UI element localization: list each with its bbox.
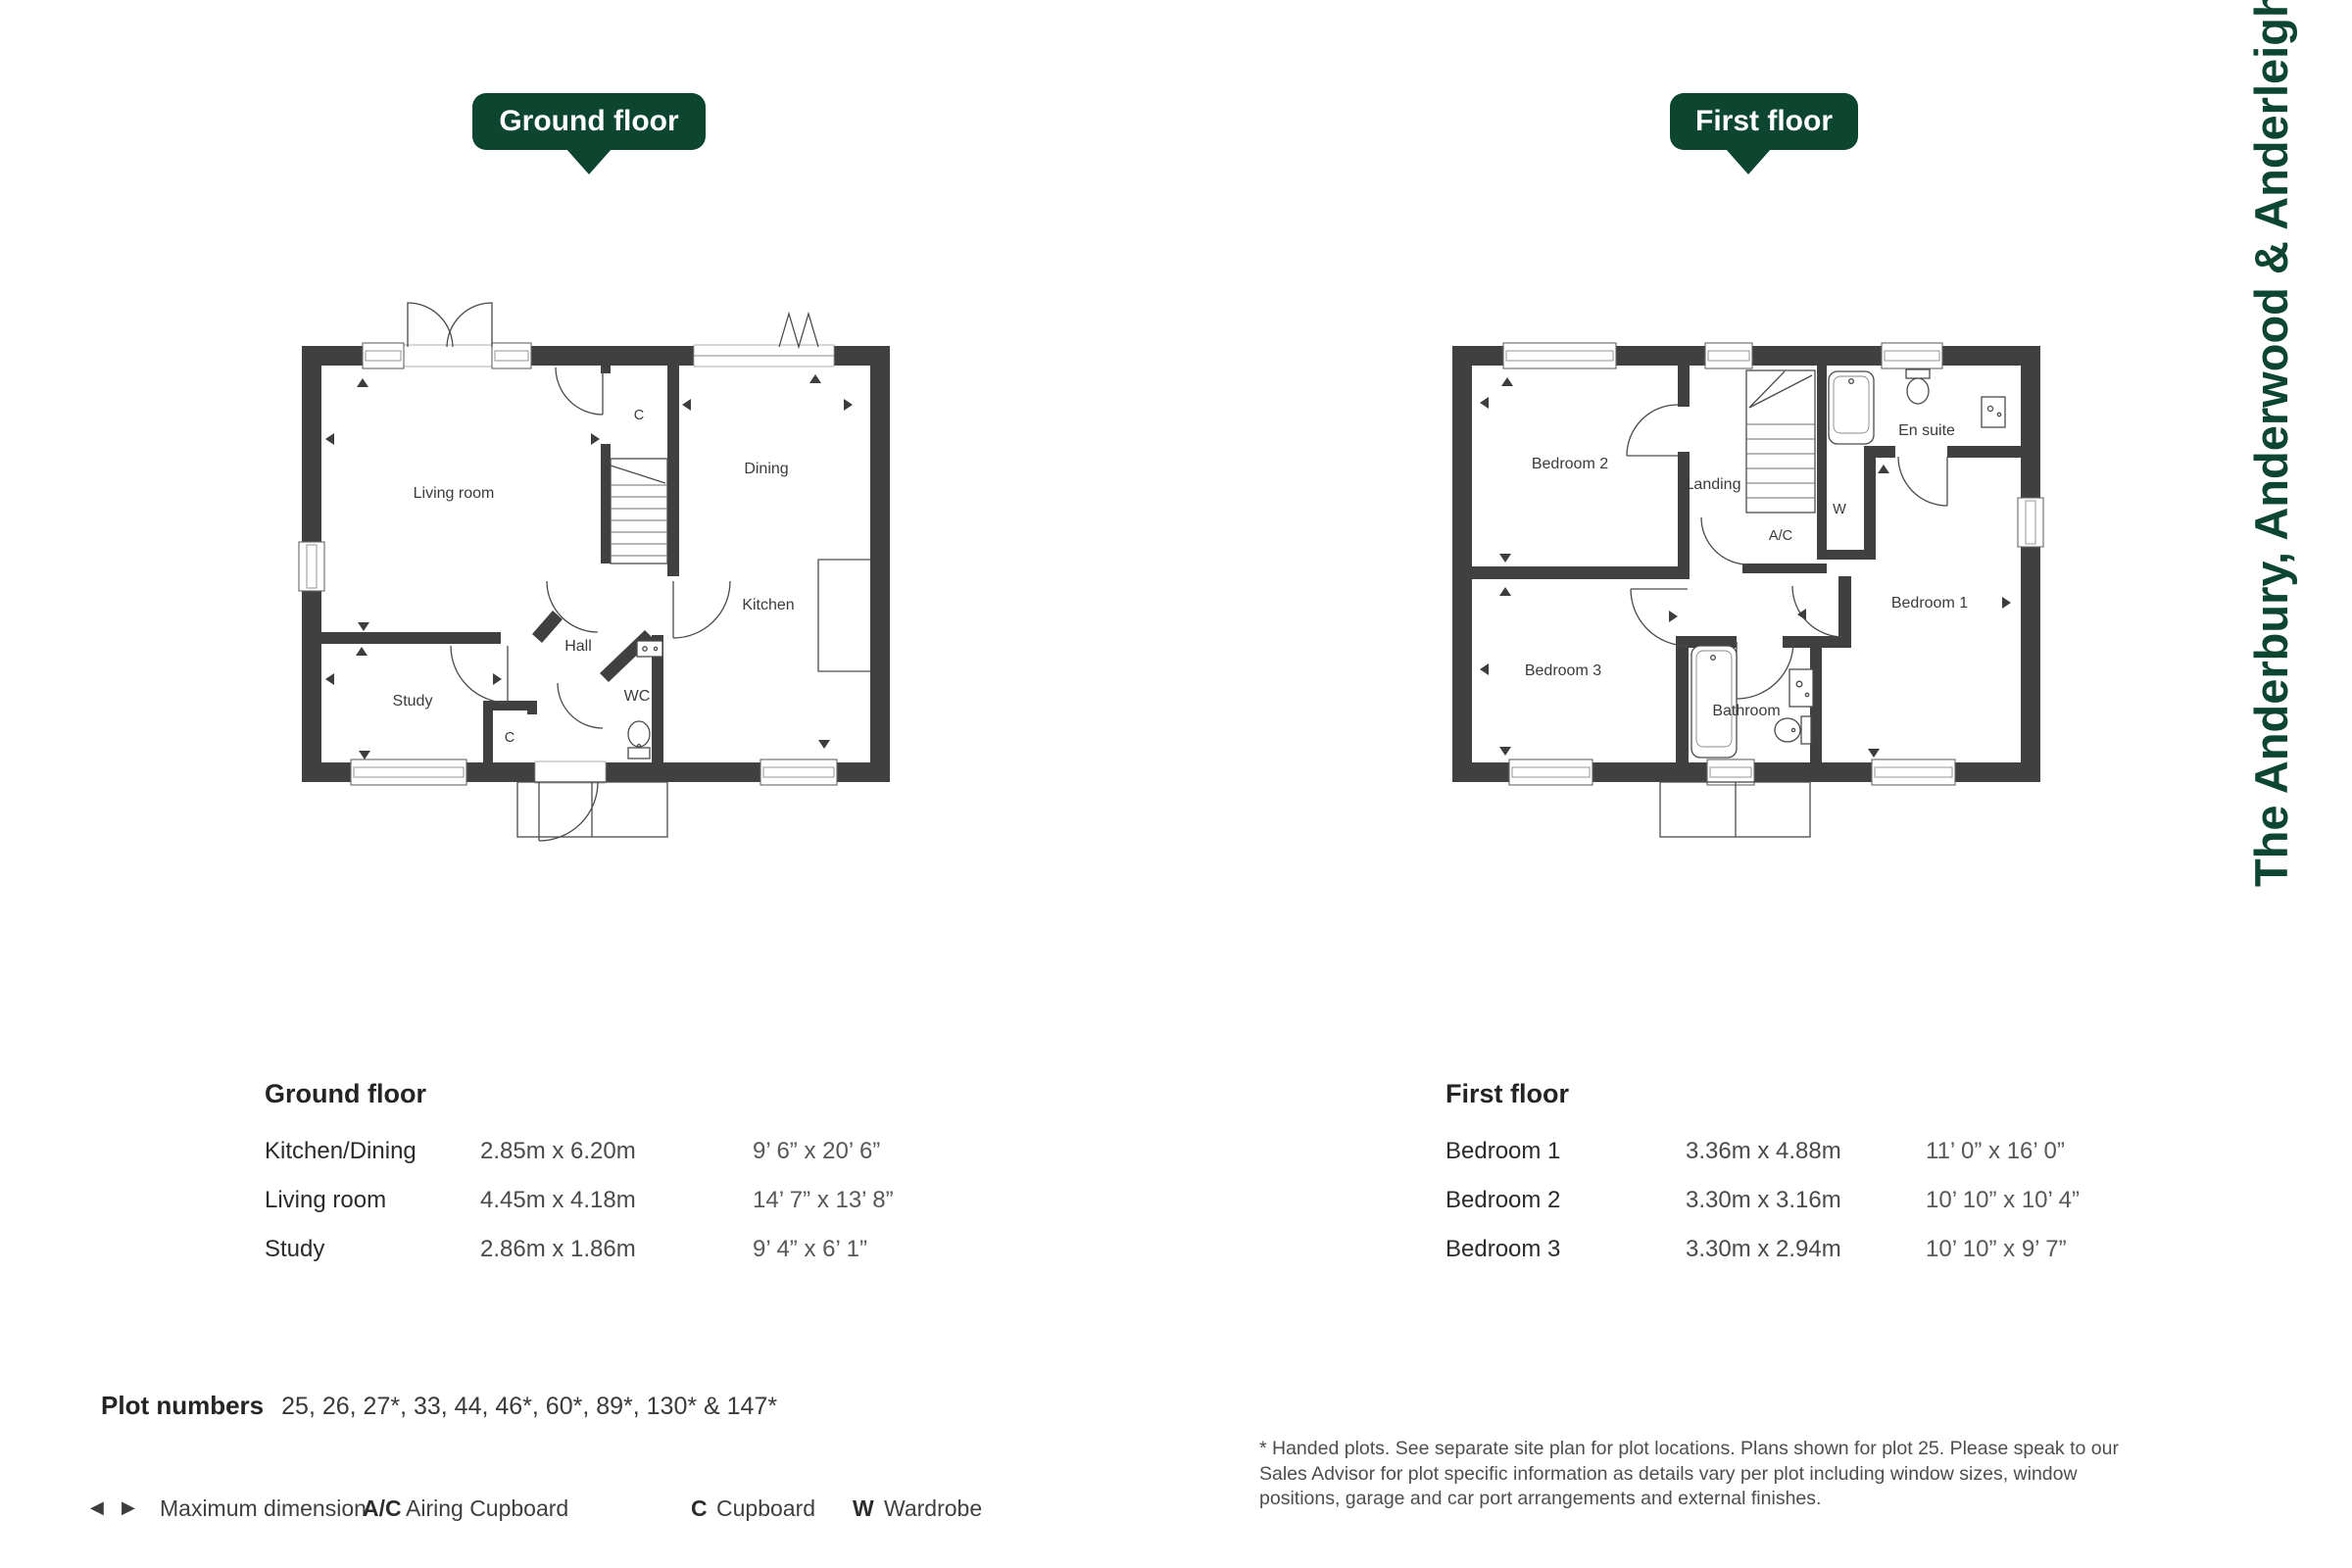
room-name: Bedroom 2 [1445, 1187, 1686, 1214]
first-floor-plan: Bedroom 2 Landing En suite W A/C Bedroom… [1452, 346, 2040, 848]
metric-dimension: 3.36m x 4.88m [1686, 1138, 1926, 1165]
room-name: Bedroom 1 [1445, 1138, 1686, 1165]
imperial-dimension: 10’ 10” x 10’ 4” [1926, 1187, 2151, 1214]
legend-cupboard-label: Cupboard [716, 1495, 815, 1522]
metric-dimension: 2.86m x 1.86m [480, 1236, 753, 1263]
ground-floor-plan: Living room Dining Kitchen Hall Study WC… [302, 346, 890, 848]
table-row: Bedroom 3 3.30m x 2.94m 10’ 10” x 9’ 7” [1445, 1225, 2151, 1274]
legend-airing-label: Airing Cupboard [406, 1495, 568, 1522]
room-name: Bedroom 3 [1445, 1236, 1686, 1263]
label-cupboard-b: C [505, 730, 514, 746]
first-floor-table: First floor Bedroom 1 3.36m x 4.88m 11’ … [1445, 1076, 2151, 1274]
first-doors [1627, 405, 1947, 699]
legend-wardrobe-label: Wardrobe [884, 1495, 982, 1522]
metric-dimension: 3.30m x 3.16m [1686, 1187, 1926, 1214]
metric-dimension: 4.45m x 4.18m [480, 1187, 753, 1214]
legend-airing-abbr: A/C [363, 1495, 402, 1522]
label-study: Study [393, 693, 433, 710]
legend-wardrobe-abbr: W [853, 1495, 874, 1522]
ground-doors [408, 303, 818, 841]
ground-floor-table-header: Ground floor [265, 1076, 978, 1127]
imperial-dimension: 10’ 10” x 9’ 7” [1926, 1236, 2151, 1263]
ground-floor-table: Ground floor Kitchen/Dining 2.85m x 6.20… [265, 1076, 978, 1274]
room-name: Study [265, 1236, 480, 1263]
first-floor-badge: First floor [1670, 93, 1858, 150]
ground-fixtures [517, 560, 870, 837]
imperial-dimension: 9’ 4” x 6’ 1” [753, 1236, 978, 1263]
table-row: Bedroom 2 3.30m x 3.16m 10’ 10” x 10’ 4” [1445, 1176, 2151, 1225]
label-en-suite: En suite [1898, 422, 1955, 439]
first-stairs [1746, 370, 1815, 513]
plot-numbers-label: Plot numbers [101, 1391, 264, 1421]
imperial-dimension: 14’ 7” x 13’ 8” [753, 1187, 978, 1214]
first-floor-badge-pointer [1725, 148, 1772, 174]
label-bedroom-2: Bedroom 2 [1532, 456, 1608, 472]
label-wardrobe: W [1833, 502, 1846, 517]
left-arrow-icon: ◀ [90, 1497, 104, 1518]
label-kitchen: Kitchen [742, 597, 794, 613]
label-dining: Dining [744, 461, 788, 477]
room-name: Living room [265, 1187, 480, 1214]
ground-floor-badge-pointer [565, 148, 612, 174]
ground-floor-badge: Ground floor [472, 93, 706, 150]
legend-max-dimension: Maximum dimension [160, 1495, 367, 1522]
table-row: Study 2.86m x 1.86m 9’ 4” x 6’ 1” [265, 1225, 978, 1274]
plot-numbers-values: 25, 26, 27*, 33, 44, 46*, 60*, 89*, 130*… [281, 1393, 777, 1421]
label-bedroom-1: Bedroom 1 [1891, 595, 1968, 612]
ground-room-labels: Living room Dining Kitchen Hall Study WC… [393, 408, 795, 746]
right-arrow-icon: ▶ [122, 1497, 135, 1518]
room-name: Kitchen/Dining [265, 1138, 480, 1165]
first-floor-table-header: First floor [1445, 1076, 2151, 1127]
metric-dimension: 2.85m x 6.20m [480, 1138, 753, 1165]
label-airing-cupboard: A/C [1769, 528, 1792, 544]
label-cupboard-a: C [634, 408, 644, 423]
label-living-room: Living room [414, 485, 495, 502]
ground-windows [299, 343, 837, 785]
ground-walls [302, 346, 890, 782]
disclaimer-text: * Handed plots. See separate site plan f… [1259, 1437, 2157, 1512]
table-row: Living room 4.45m x 4.18m 14’ 7” x 13’ 8… [265, 1176, 978, 1225]
plot-numbers: Plot numbers 25, 26, 27*, 33, 44, 46*, 6… [101, 1391, 777, 1421]
label-bathroom: Bathroom [1712, 703, 1780, 719]
metric-dimension: 3.30m x 2.94m [1686, 1236, 1926, 1263]
table-row: Kitchen/Dining 2.85m x 6.20m 9’ 6” x 20’… [265, 1127, 978, 1176]
page-title-vertical: The Anderbury, Anderwood & Anderleigh [2243, 24, 2300, 887]
imperial-dimension: 11’ 0” x 16’ 0” [1926, 1138, 2151, 1165]
label-bedroom-3: Bedroom 3 [1525, 662, 1601, 679]
label-hall: Hall [564, 638, 592, 655]
imperial-dimension: 9’ 6” x 20’ 6” [753, 1138, 978, 1165]
label-wc: WC [624, 688, 651, 705]
legend-cupboard-abbr: C [691, 1495, 708, 1522]
ground-stairs [611, 459, 667, 563]
label-landing: Landing [1686, 476, 1741, 493]
table-row: Bedroom 1 3.36m x 4.88m 11’ 0” x 16’ 0” [1445, 1127, 2151, 1176]
